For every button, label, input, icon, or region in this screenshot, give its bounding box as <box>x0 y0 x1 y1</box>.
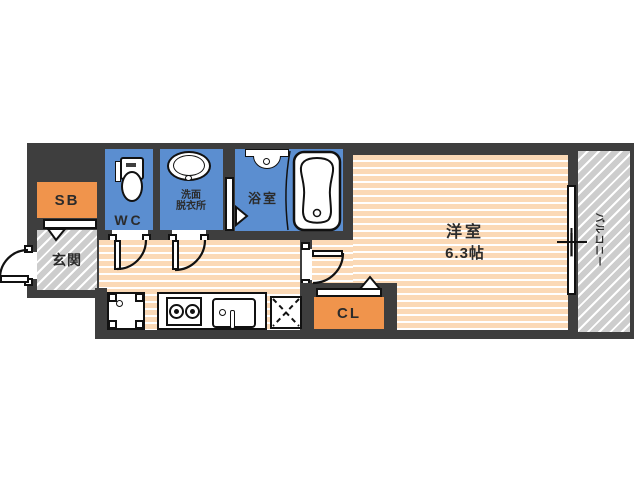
basin-faucet-icon <box>185 175 192 181</box>
toilet-handle-icon <box>126 163 136 167</box>
faucet-stem-icon <box>230 310 235 329</box>
entrance-step <box>43 219 97 229</box>
pan-drain-icon <box>116 300 123 307</box>
pan-corner <box>135 293 144 302</box>
entrance-door-swing <box>0 250 28 278</box>
faucet-icon <box>219 309 226 316</box>
burner-icon <box>169 304 184 319</box>
room-vestibule-floor <box>312 240 353 286</box>
washroom-label-line2: 脱衣所 <box>176 201 206 212</box>
bathroom-label: 浴室 <box>233 188 293 207</box>
pan-corner <box>135 320 144 329</box>
closet-folding-door <box>316 288 382 297</box>
burner-icon <box>185 304 200 319</box>
kitchen-side-wall <box>95 288 107 339</box>
room-door-leaf <box>312 250 343 257</box>
genkan-area: 玄関 <box>37 230 97 290</box>
room-door-opening <box>302 249 312 280</box>
door-hinge <box>24 245 33 253</box>
wc-label: WC <box>105 212 153 228</box>
washroom-door-leaf <box>172 240 179 270</box>
floorplan-canvas: SB 玄関 WC 洗面 脱衣所 浴室 CL <box>0 0 640 480</box>
western-room-label: 洋室 6.3帖 <box>400 218 530 256</box>
entrance-door-leaf <box>0 275 29 283</box>
closet-box: CL <box>314 297 384 329</box>
washer-pan-icon <box>107 292 145 330</box>
closet-label: CL <box>337 305 361 322</box>
door-hinge <box>301 242 310 250</box>
bath-faucet-icon <box>263 158 270 165</box>
exterior-notch <box>27 298 95 339</box>
refrigerator-space-icon <box>270 296 302 329</box>
bathroom-folding-door <box>225 177 234 231</box>
room-name: 洋室 <box>400 218 530 242</box>
basin-rim-icon <box>173 155 205 176</box>
washroom-label-line1: 洗面 <box>181 190 201 201</box>
toilet-bowl-icon <box>121 171 143 202</box>
wc-door-leaf <box>114 240 121 270</box>
pan-corner <box>108 320 117 329</box>
washroom-label: 洗面 脱衣所 <box>158 190 224 212</box>
window-pane <box>570 233 573 257</box>
genkan-label: 玄関 <box>52 250 82 270</box>
shoe-box: SB <box>37 182 97 218</box>
room-size-label: 6.3帖 <box>400 242 530 263</box>
balcony-label: バルコニー <box>594 200 608 280</box>
shoe-box-label: SB <box>55 192 80 209</box>
